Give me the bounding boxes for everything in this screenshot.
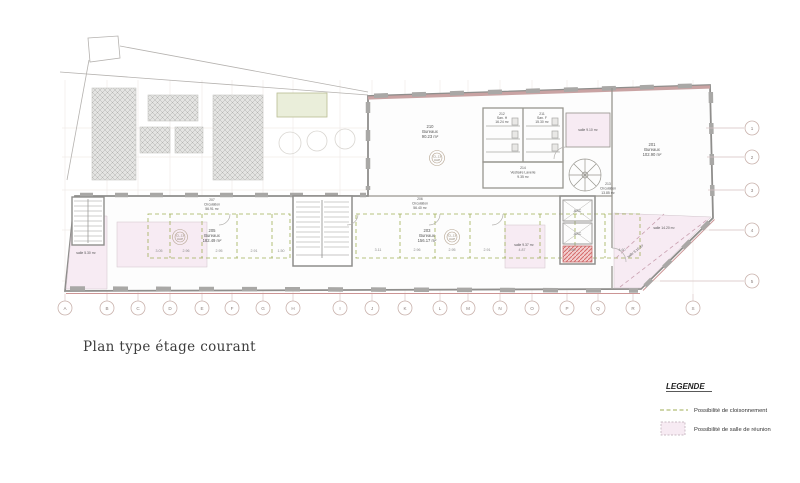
legend-item-label: Possibilité de cloisonnement [694,408,768,414]
svg-text:4.87: 4.87 [519,248,526,252]
svg-text:214: 214 [520,166,526,170]
stair-center [293,196,352,266]
svg-text:salle 9.10 m²: salle 9.10 m² [578,128,598,132]
terrace-trees [279,129,355,154]
svg-text:L: L [439,306,442,311]
svg-text:I: I [339,306,340,311]
svg-text:56.40 m²: 56.40 m² [413,206,427,210]
legend-item-label: Possibilité de salle de réunion [694,427,771,433]
svg-text:2: 2 [751,155,754,160]
svg-text:15.30 m²: 15.30 m² [535,120,549,124]
legend-heading: LEGENDE [666,382,705,391]
svg-text:2.96: 2.96 [183,249,190,253]
stamp-text: UAP [177,237,183,241]
skylight-strip [277,93,327,117]
legend-pink-room-symbol [661,422,685,435]
stair-left [72,197,104,245]
svg-text:M: M [466,306,470,311]
floor-plan-drawing: CL.13 UAP CL.13 UAP CL.13 UAP 210 Bureau… [0,0,800,483]
stamp-text: UAP [449,237,455,241]
svg-text:2.91: 2.91 [251,249,258,253]
svg-text:salle 5.30 m²: salle 5.30 m² [76,251,96,255]
svg-text:207: 207 [209,198,215,202]
svg-text:F: F [231,306,234,311]
svg-text:salle 14.20 m²: salle 14.20 m² [653,226,675,230]
svg-text:Circulation: Circulation [600,187,616,191]
svg-text:Circulation: Circulation [204,203,220,207]
roof-garden-hatch [92,88,263,180]
svg-text:Circulation: Circulation [412,202,428,206]
svg-text:5: 5 [751,279,754,284]
svg-text:B: B [105,306,108,311]
svg-text:P: P [565,306,568,311]
svg-text:ASC: ASC [574,232,582,236]
svg-text:206: 206 [417,197,423,201]
red-shaft [563,246,592,262]
svg-text:156.17 m²: 156.17 m² [418,238,437,243]
svg-text:S: S [691,306,694,311]
floor-plan-canvas: CL.13 UAP CL.13 UAP CL.13 UAP 210 Bureau… [0,0,800,483]
legend: LEGENDE Possibilité de cloisonnement Pos… [660,382,771,435]
axis-bottom: A B C D E F G H I J K L M N O P Q R S [58,294,700,315]
stamp-text: UAP [434,158,440,162]
svg-text:16.24 m²: 16.24 m² [495,120,509,124]
svg-text:90.23 m²: 90.23 m² [422,134,439,139]
svg-text:E: E [200,306,203,311]
svg-text:2.91: 2.91 [484,248,491,252]
svg-text:2.96: 2.96 [414,248,421,252]
svg-text:3.05: 3.05 [156,249,163,253]
stair-spiral [569,159,601,191]
svg-text:102.90 m²: 102.90 m² [643,152,662,157]
svg-text:Q: Q [596,306,600,311]
svg-text:2.95: 2.95 [449,248,456,252]
svg-text:Vestiaire Laverie: Vestiaire Laverie [510,171,535,175]
svg-text:G: G [261,306,265,311]
svg-text:ASC: ASC [574,209,582,213]
svg-text:3: 3 [751,188,754,193]
svg-text:4.60: 4.60 [619,248,626,252]
svg-text:4: 4 [751,228,754,233]
svg-text:N: N [498,306,501,311]
page-title: Plan type étage courant [83,339,256,355]
svg-text:O: O [530,306,534,311]
svg-text:3.11: 3.11 [375,248,382,252]
svg-text:56.91 m²: 56.91 m² [205,207,219,211]
svg-text:2.80: 2.80 [569,248,576,252]
svg-text:H: H [291,306,294,311]
svg-text:1: 1 [751,126,754,131]
svg-text:13.85 m²: 13.85 m² [601,191,615,195]
svg-text:J: J [371,306,373,311]
svg-text:1.50: 1.50 [278,249,285,253]
svg-text:213: 213 [605,182,611,186]
svg-text:182.49 m²: 182.49 m² [203,238,222,243]
svg-text:9.35 m²: 9.35 m² [517,175,529,179]
svg-text:2.95: 2.95 [216,249,223,253]
svg-text:salle 9.37 m²: salle 9.37 m² [514,243,534,247]
